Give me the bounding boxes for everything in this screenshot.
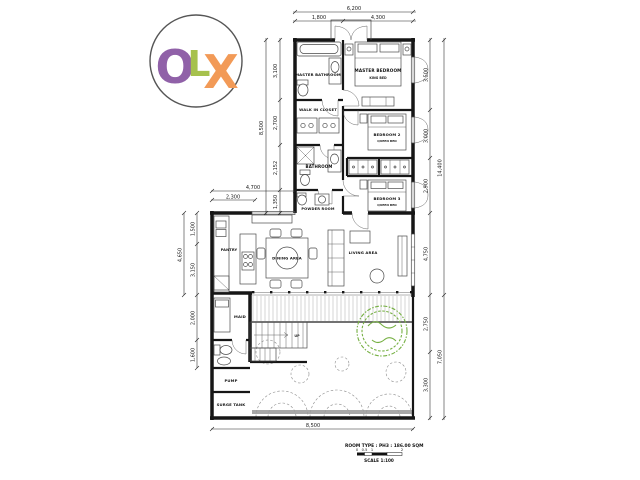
dimension-label: 2,000 (191, 311, 197, 325)
room-label-pantry: PANTRY (221, 248, 238, 252)
dimension-label: 1,500 (191, 222, 197, 236)
room-label-surge-tank: SURGE TANK (217, 402, 247, 407)
master-bathroom: MASTER BATHROOM (295, 42, 341, 96)
bedroom-2: BEDROOM 2 QUEEN BED (360, 114, 406, 150)
scale-label: SCALE 1:100 (364, 458, 394, 463)
room-label-walk-in-closet: WALK IN CLOSET (299, 107, 337, 112)
room-label-bedroom-3: BEDROOM 3 (373, 196, 400, 201)
room-label-living-area: LIVING AREA (349, 250, 378, 255)
dimension-label: 1,600 (191, 348, 197, 362)
dimension-label: 3,500 (424, 68, 430, 82)
room-label-dining-area: DINING AREA (272, 256, 302, 261)
pump-room: PUMP (224, 378, 237, 383)
room-label-bathroom: BATHROOM (306, 164, 333, 169)
powder-room: POWDER ROOM (297, 193, 335, 211)
dimension-label: 8,500 (259, 121, 265, 135)
scale-tick-2: 2 (401, 448, 403, 452)
dimension-label: 2,750 (424, 317, 430, 331)
bed-label-queen-3: QUEEN BED (377, 203, 397, 207)
room-label-bedroom-2: BEDROOM 2 (373, 132, 400, 137)
logo-letter-x: X (203, 45, 238, 99)
dimension-label: 1,350 (273, 195, 279, 209)
dimension-label: 6,200 (347, 6, 361, 12)
dimension-label: 8,500 (306, 423, 320, 429)
olx-logo: O L X (150, 15, 242, 107)
bedroom-3: BEDROOM 3 QUEEN BED (360, 180, 406, 211)
surge-tank-room: SURGE TANK (217, 402, 247, 407)
maid-bathroom (214, 345, 232, 365)
deck-posts (252, 291, 412, 293)
dimension-label: 4,300 (371, 15, 385, 21)
room-label-powder-room: POWDER ROOM (301, 207, 334, 211)
dimension-label: 2,900 (424, 179, 430, 193)
dimension-label: 4,750 (424, 247, 430, 261)
dimension-label: 3,100 (273, 64, 279, 78)
bathroom: BATHROOM (297, 147, 341, 186)
dimension-label: 4,700 (246, 185, 260, 191)
walls (210, 38, 415, 420)
paving-strip (252, 410, 412, 414)
stairs: UP (250, 322, 307, 361)
dimension-label: 2,700 (273, 116, 279, 130)
dimension-label: 3,300 (424, 378, 430, 392)
room-label-maid: MAID (234, 314, 246, 319)
scale-tick-05: 0.5 (362, 448, 368, 452)
dimension-label: 14,400 (438, 159, 444, 177)
legend: ROOM TYPE : PH3 : 186.00 SQM 0 0.5 1 2 S… (345, 443, 423, 463)
room-label-master-bedroom: MASTER BEDROOM (355, 68, 402, 73)
living-area: LIVING AREA (328, 230, 407, 286)
bed-label-queen-2: QUEEN BED (377, 139, 397, 143)
room-label-master-bathroom: MASTER BATHROOM (295, 72, 341, 77)
stairs-up-label: UP (294, 334, 300, 338)
maid-room: MAID (214, 298, 246, 332)
room-label-pump: PUMP (224, 378, 237, 383)
dining-area: DINING AREA (257, 229, 317, 288)
dimension-label: 2,300 (226, 195, 240, 201)
dimension-label: 3,000 (424, 129, 430, 143)
dimension-label: 3,150 (191, 263, 197, 277)
dimension-label: 1,800 (312, 15, 326, 21)
scale-bar: 0 0.5 1 2 (356, 448, 403, 456)
dimension-label: 2,152 (273, 161, 279, 175)
scale-tick-1: 1 (371, 448, 373, 452)
deck (252, 291, 413, 322)
master-bedroom: MASTER BEDROOM KING BED (345, 42, 411, 106)
bed-label-king: KING BED (369, 76, 387, 80)
dimension-label: 4,650 (178, 248, 184, 262)
dimension-label: 7,050 (438, 350, 444, 364)
floor-plan-image: O L X (0, 0, 640, 480)
walk-in-closet: WALK IN CLOSET (297, 107, 339, 133)
